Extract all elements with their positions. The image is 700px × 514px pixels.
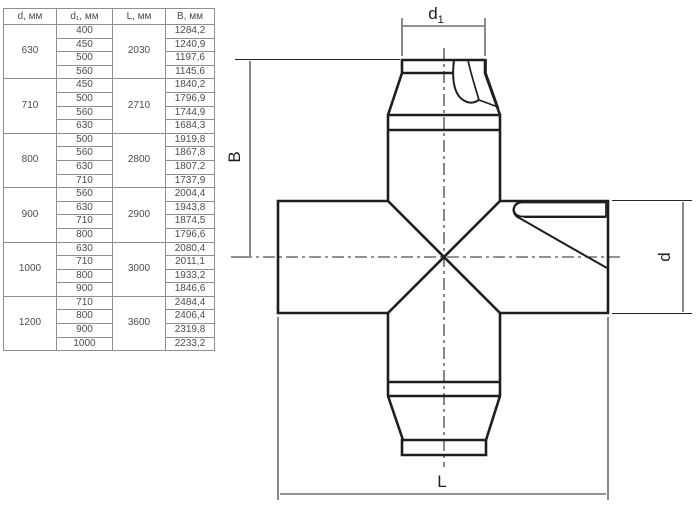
label-d: d (655, 252, 674, 261)
dimension-labels: d1 B d L (225, 4, 674, 491)
b-extension-lines (231, 60, 400, 258)
d-extension-lines (612, 201, 692, 314)
right-seal-hatch (514, 203, 606, 217)
cutaway-sections (453, 60, 607, 268)
technical-drawing: d1 B d L (0, 0, 700, 514)
top-cutaway-curve (453, 60, 479, 103)
right-cutaway-curve (514, 202, 607, 269)
dimensions (231, 18, 692, 500)
page: d, ммd₁, ммL, ммB, мм 63040020301284,245… (0, 0, 700, 514)
label-l: L (437, 472, 446, 491)
label-d1: d1 (428, 4, 444, 26)
centerlines (240, 48, 622, 467)
label-b: B (225, 151, 244, 162)
